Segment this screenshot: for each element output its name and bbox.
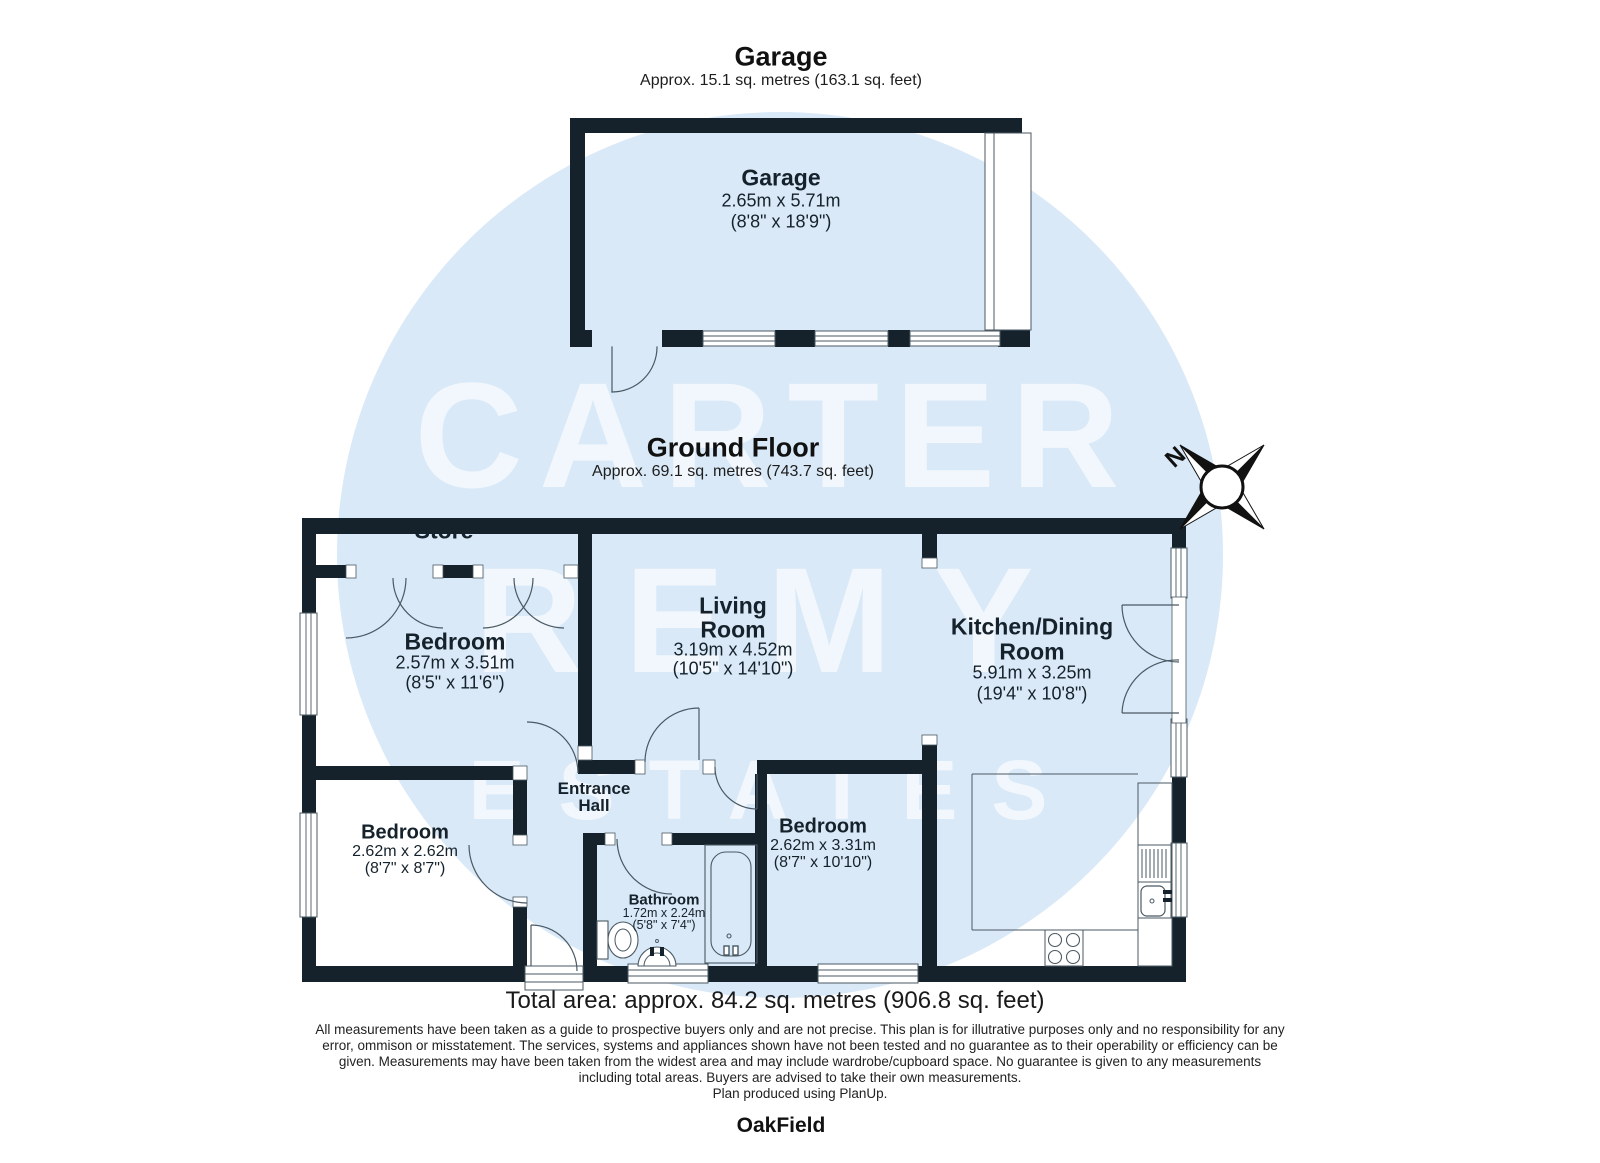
room-dims-kitchen-m: 5.91m x 3.25m xyxy=(972,663,1091,684)
garage-side-door xyxy=(612,347,657,392)
room-dims-bedroom-mid-m: 2.62m x 3.31m xyxy=(770,837,876,855)
compass-north-icon: N xyxy=(1160,442,1264,529)
room-label-living-1: Living xyxy=(699,593,767,620)
french-doors xyxy=(1122,597,1186,723)
room-dims-garage-m: 2.65m x 5.71m xyxy=(721,191,840,212)
disclaimer-text: All measurements have been taken as a gu… xyxy=(0,1022,1600,1102)
room-label-store: Store xyxy=(415,518,474,545)
total-area-text: Total area: approx. 84.2 sq. metres (906… xyxy=(506,987,1045,1015)
room-dims-garage-ft: (8'8" x 18'9") xyxy=(731,212,832,233)
garage-section-area: Approx. 15.1 sq. metres (163.1 sq. feet) xyxy=(640,72,922,90)
room-dims-bedroom-top-m: 2.57m x 3.51m xyxy=(395,653,514,674)
room-dims-kitchen-ft: (19'4" x 10'8") xyxy=(977,684,1088,705)
ground-floor-area: Approx. 69.1 sq. metres (743.7 sq. feet) xyxy=(592,463,874,481)
room-dims-bedroom-left-m: 2.62m x 2.62m xyxy=(352,843,458,861)
room-label-bedroom-left: Bedroom xyxy=(361,822,449,845)
disclaimer-line: error, ommison or misstatement. The serv… xyxy=(0,1038,1600,1054)
kitchen-sink-icon xyxy=(1141,886,1172,916)
room-dims-bathroom-ft: (5'8" x 7'4") xyxy=(633,918,696,932)
bathtub-icon xyxy=(705,845,757,963)
room-label-bedroom-mid: Bedroom xyxy=(779,816,867,839)
disclaimer-line: given. Measurements may have been taken … xyxy=(0,1054,1600,1070)
agency-brand-name: OakField xyxy=(737,1114,826,1138)
room-label-hall-2: Hall xyxy=(578,796,609,816)
room-label-bedroom-top: Bedroom xyxy=(405,629,506,656)
garage-door xyxy=(985,133,1031,330)
disclaimer-line: All measurements have been taken as a gu… xyxy=(0,1022,1600,1038)
disclaimer-line: Plan produced using PlanUp. xyxy=(0,1086,1600,1102)
ground-floor-title: Ground Floor xyxy=(647,433,819,464)
disclaimer-line: including total areas. Buyers are advise… xyxy=(0,1070,1600,1086)
room-label-garage: Garage xyxy=(741,165,820,192)
room-label-kitchen-1: Kitchen/Dining xyxy=(951,614,1113,641)
room-dims-bedroom-top-ft: (8'5" x 11'6") xyxy=(405,673,504,694)
garage-plan xyxy=(570,118,1031,392)
compass-n-label: N xyxy=(1160,442,1191,474)
hob-icon xyxy=(1045,930,1083,966)
ground-floor-plan xyxy=(300,518,1187,990)
garage-windows xyxy=(703,331,1000,346)
basin-icon xyxy=(638,940,676,967)
room-label-kitchen-2: Room xyxy=(999,639,1064,666)
room-dims-bedroom-mid-ft: (8'7" x 10'10") xyxy=(774,854,872,872)
front-door xyxy=(525,925,583,990)
floorplan-page: CARTER REMY ESTATES xyxy=(0,0,1600,1163)
room-dims-living-ft: (10'5" x 14'10") xyxy=(673,659,794,680)
garage-section-title: Garage xyxy=(734,42,827,73)
room-dims-living-m: 3.19m x 4.52m xyxy=(673,640,792,661)
room-dims-bedroom-left-ft: (8'7" x 8'7") xyxy=(365,860,446,878)
